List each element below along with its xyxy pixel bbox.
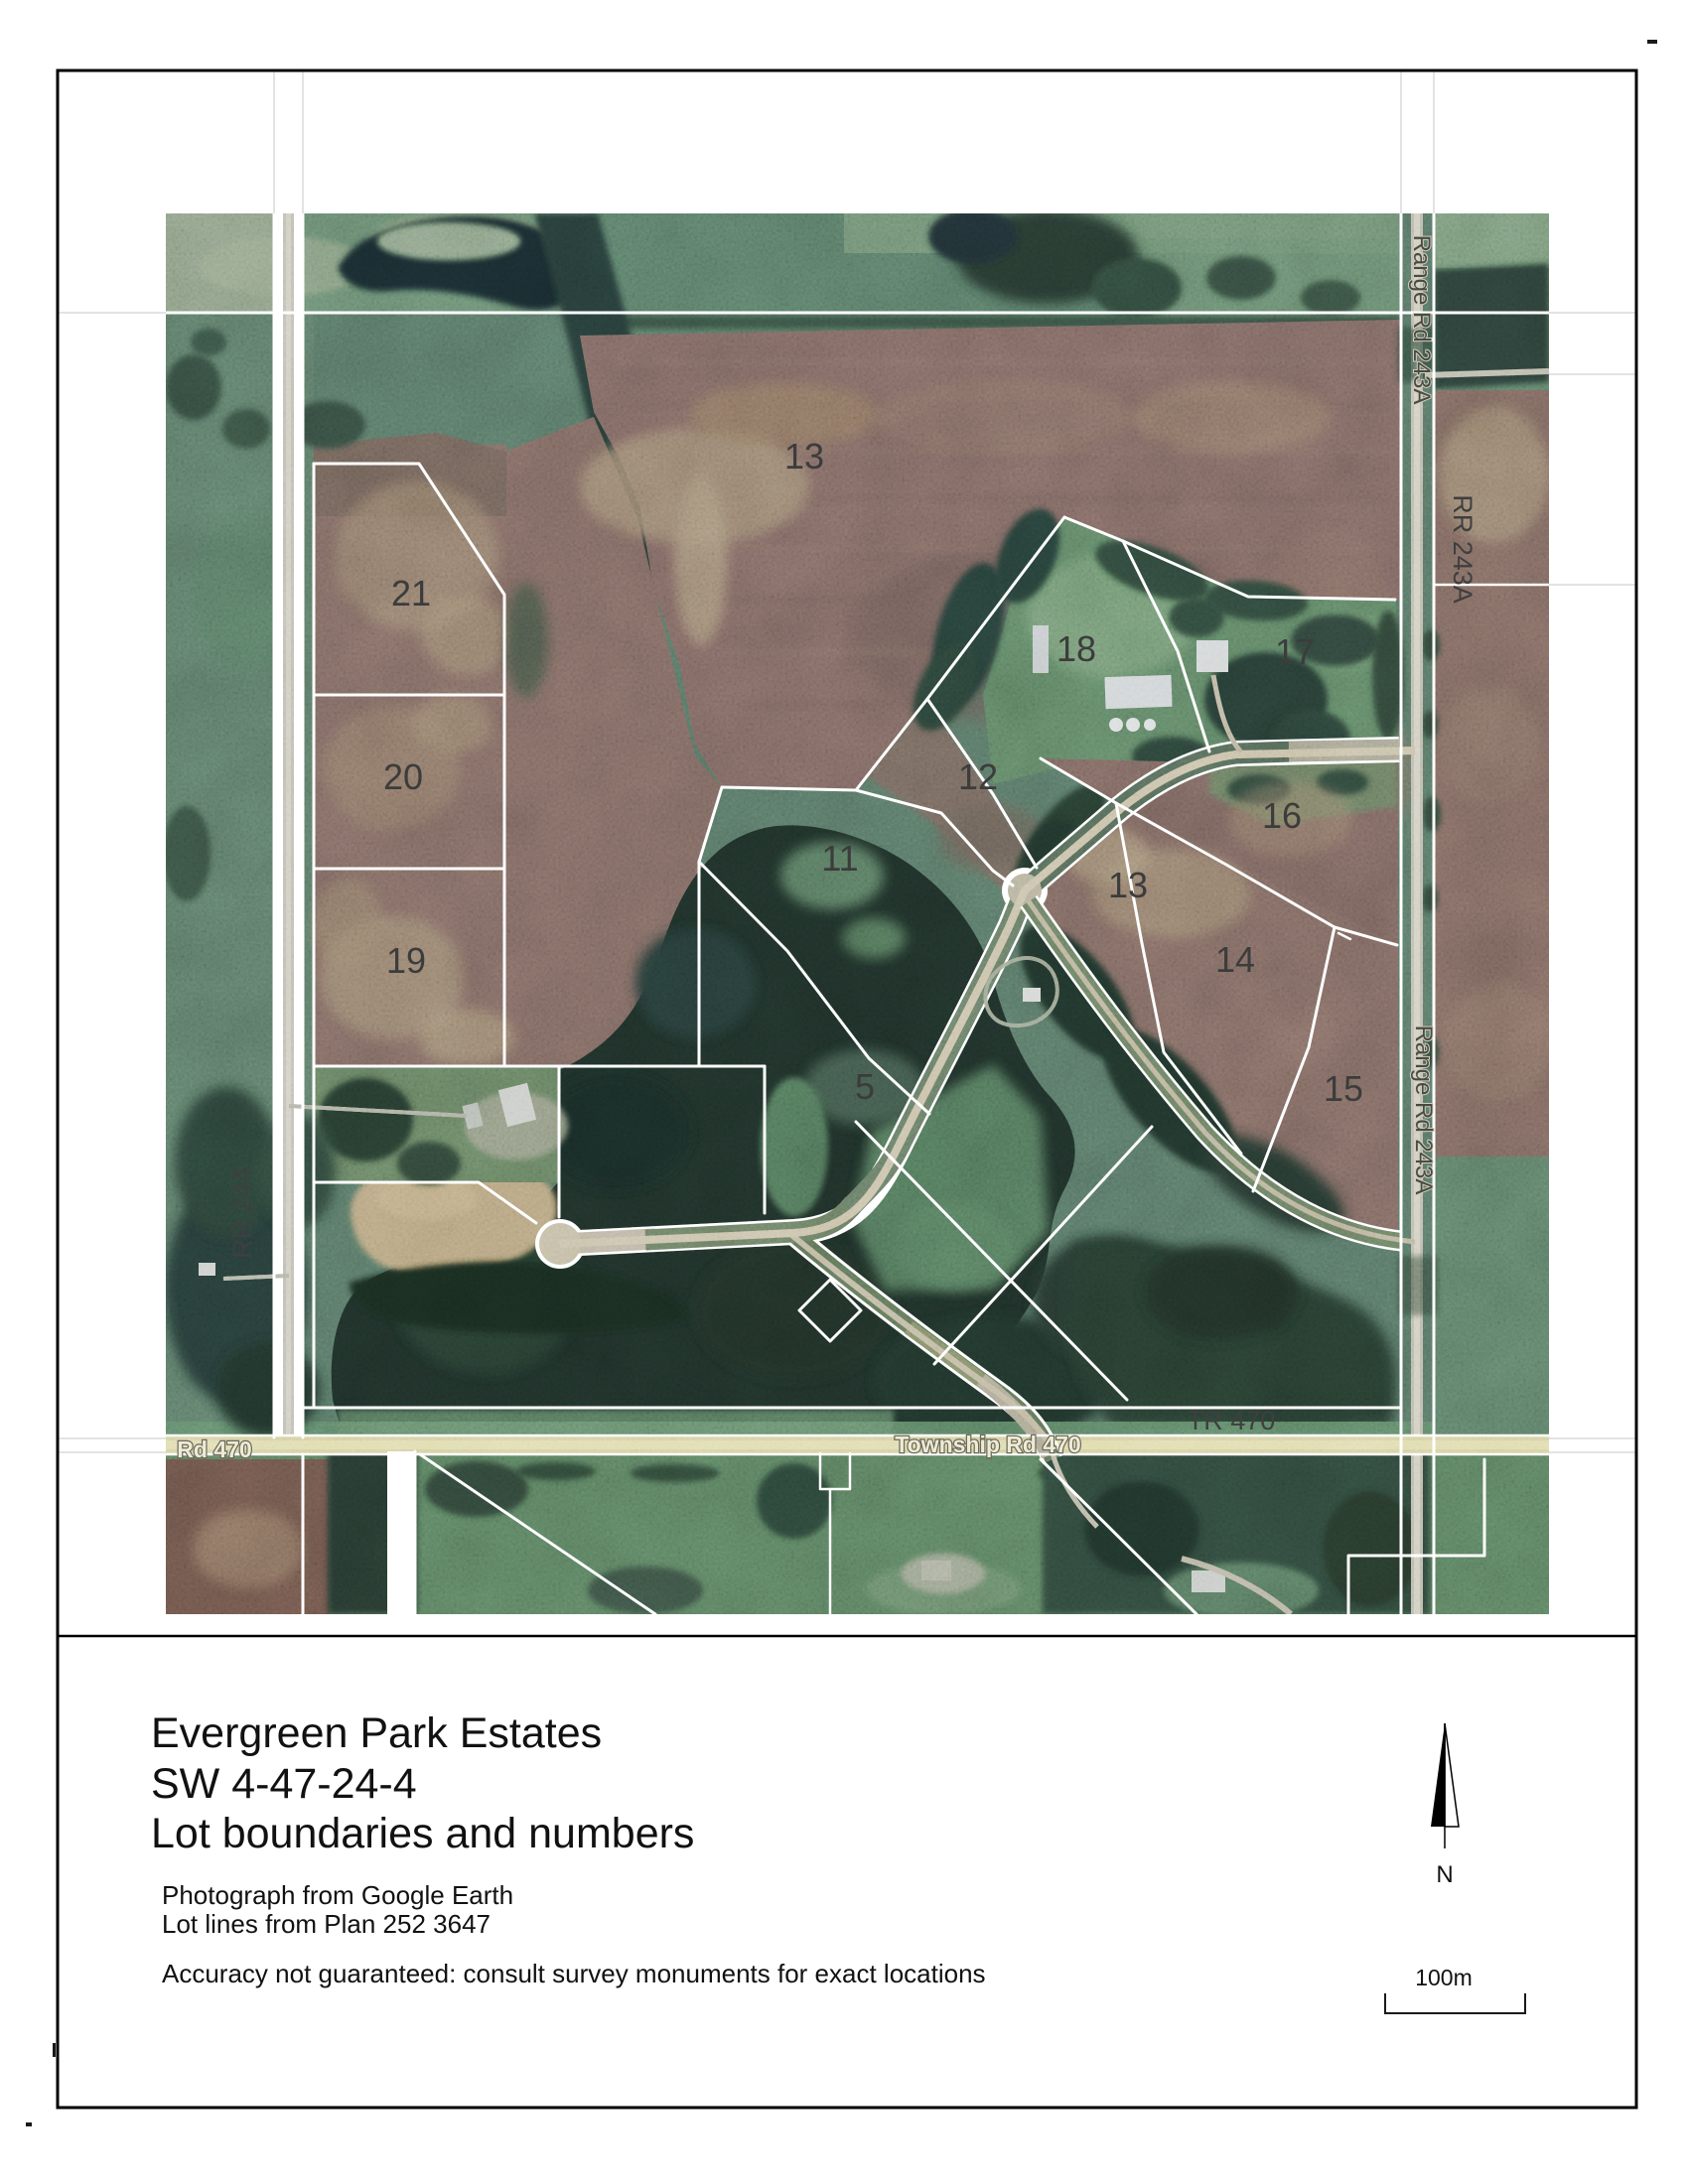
svg-text:Lot boundaries and numbers: Lot boundaries and numbers (151, 1810, 694, 1857)
svg-text:SW 4-47-24-4: SW 4-47-24-4 (151, 1760, 417, 1808)
svg-text:Township Rd 470: Township Rd 470 (895, 1432, 1080, 1457)
svg-text:RR 244: RR 244 (227, 1167, 257, 1259)
svg-text:15: 15 (1324, 1068, 1363, 1109)
svg-text:13: 13 (784, 436, 824, 477)
svg-text:19: 19 (386, 940, 426, 981)
svg-text:16: 16 (1262, 795, 1302, 836)
svg-text:100m: 100m (1415, 1965, 1473, 1990)
svg-text:18: 18 (1056, 628, 1096, 669)
svg-text:12: 12 (958, 756, 998, 797)
svg-text:N: N (1436, 1861, 1453, 1888)
svg-text:Range Rd 243A: Range Rd 243A (1408, 235, 1435, 405)
svg-text:20: 20 (383, 756, 423, 797)
svg-text:21: 21 (391, 573, 431, 614)
svg-text:17: 17 (1275, 631, 1315, 672)
svg-text:RR 243A: RR 243A (1448, 494, 1477, 604)
svg-text:14: 14 (1215, 939, 1255, 980)
svg-text:13: 13 (1108, 865, 1148, 905)
svg-text:Lot lines from Plan 252 3647: Lot lines from Plan 252 3647 (162, 1909, 491, 1939)
svg-text:Range Rd 243A: Range Rd 243A (1410, 1025, 1437, 1195)
svg-text:Rd 470: Rd 470 (177, 1436, 251, 1462)
svg-text:Evergreen Park Estates: Evergreen Park Estates (151, 1709, 602, 1757)
svg-text:TR 470: TR 470 (1188, 1406, 1276, 1435)
svg-text:5: 5 (855, 1066, 875, 1107)
svg-text:11: 11 (821, 838, 858, 879)
svg-text:Photograph from Google Earth: Photograph from Google Earth (162, 1880, 513, 1910)
svg-text:Accuracy not guaranteed: consu: Accuracy not guaranteed: consult survey … (162, 1959, 986, 1988)
